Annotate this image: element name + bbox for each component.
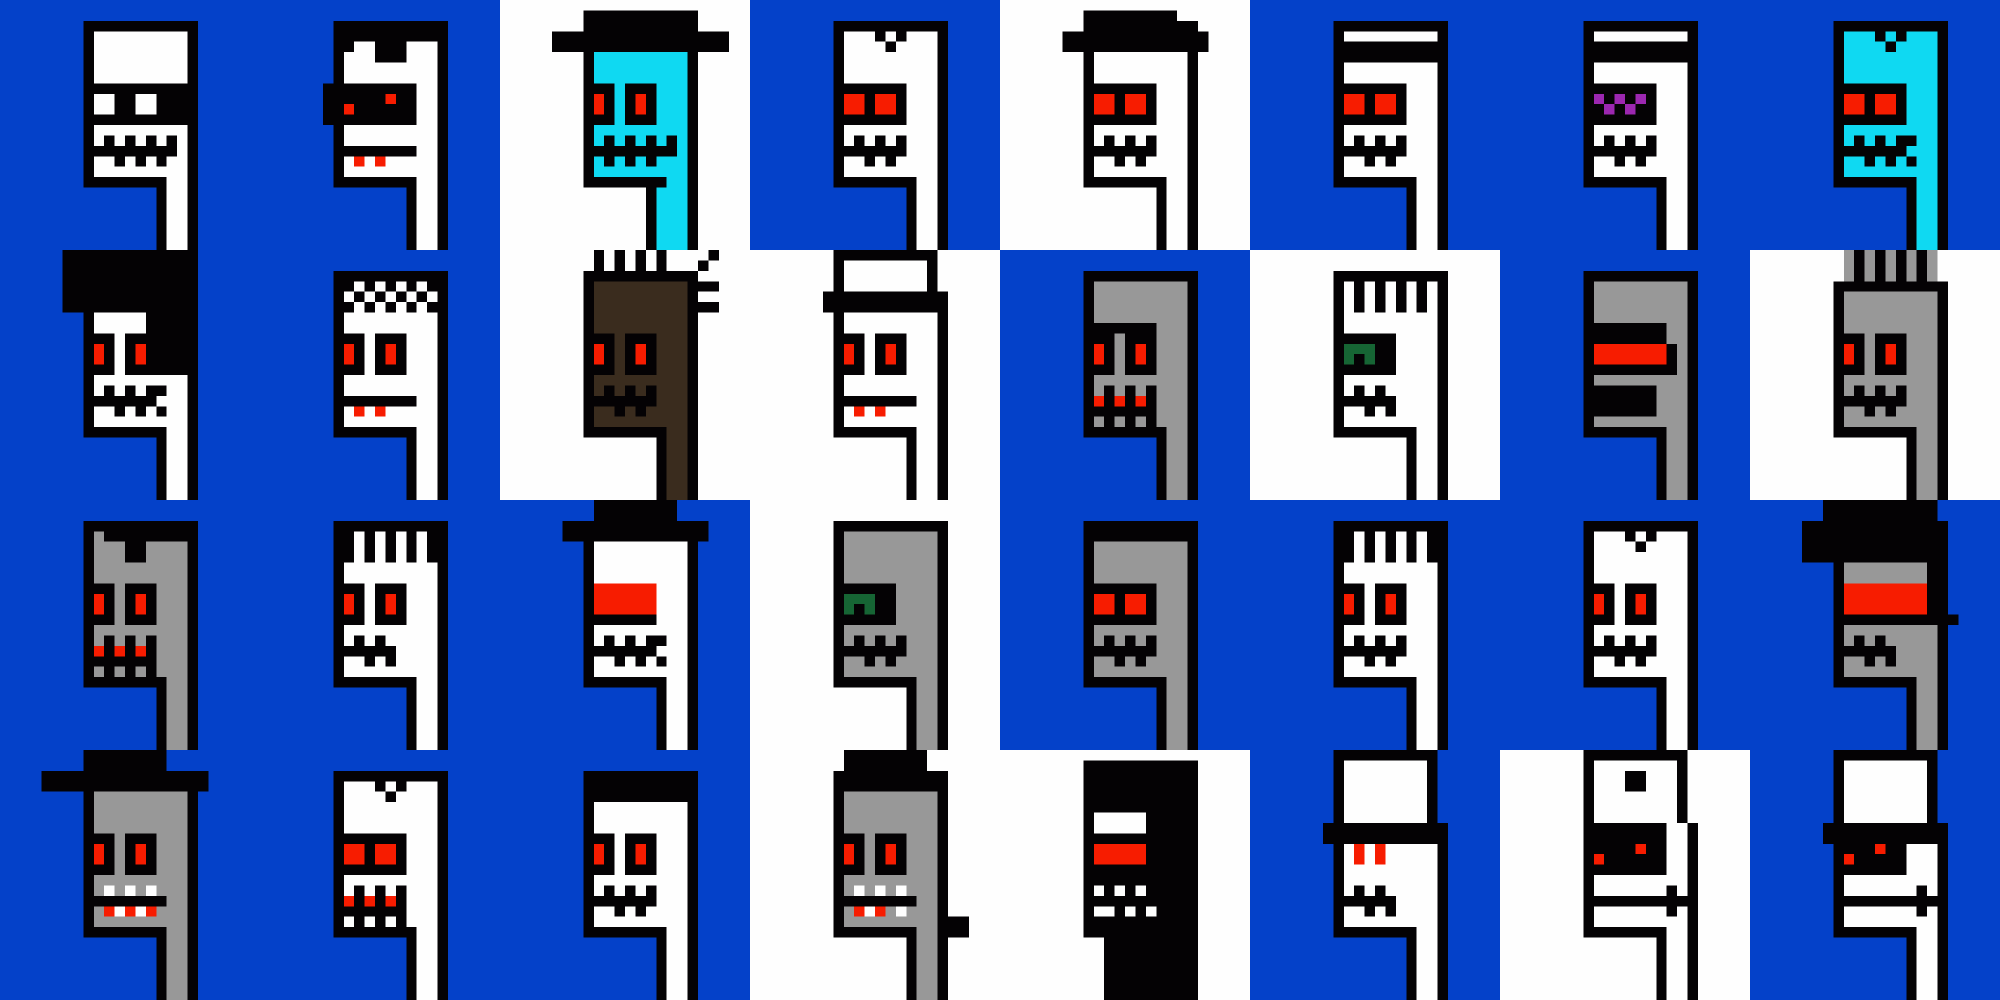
skull-pixel-canvas bbox=[750, 500, 1000, 750]
skull-avatar bbox=[0, 750, 250, 1000]
skull-pixel-canvas bbox=[750, 250, 1000, 500]
skull-pixel-canvas bbox=[500, 0, 750, 250]
skull-avatar bbox=[1250, 750, 1500, 1000]
skull-avatar bbox=[1250, 0, 1500, 250]
skull-avatar bbox=[1000, 500, 1250, 750]
skull-pixel-canvas bbox=[1000, 750, 1250, 1000]
skull-avatar bbox=[1000, 750, 1250, 1000]
skull-pixel-canvas bbox=[250, 500, 500, 750]
skull-avatar bbox=[1750, 750, 2000, 1000]
skull-art-grid bbox=[0, 0, 2000, 1000]
skull-pixel-canvas bbox=[1750, 250, 2000, 500]
skull-avatar bbox=[500, 500, 750, 750]
skull-pixel-canvas bbox=[500, 500, 750, 750]
skull-pixel-canvas bbox=[250, 250, 500, 500]
skull-avatar bbox=[0, 0, 250, 250]
skull-avatar bbox=[250, 500, 500, 750]
skull-avatar bbox=[1000, 250, 1250, 500]
skull-pixel-canvas bbox=[1500, 500, 1750, 750]
skull-pixel-canvas bbox=[0, 750, 250, 1000]
skull-pixel-canvas bbox=[1250, 500, 1500, 750]
skull-avatar bbox=[1000, 0, 1250, 250]
skull-avatar bbox=[1750, 500, 2000, 750]
skull-pixel-canvas bbox=[0, 250, 250, 500]
skull-pixel-canvas bbox=[1000, 0, 1250, 250]
skull-avatar bbox=[1500, 250, 1750, 500]
skull-avatar bbox=[250, 750, 500, 1000]
skull-avatar bbox=[750, 250, 1000, 500]
skull-avatar bbox=[1500, 0, 1750, 250]
skull-pixel-canvas bbox=[0, 0, 250, 250]
skull-avatar bbox=[250, 250, 500, 500]
skull-avatar bbox=[1750, 0, 2000, 250]
skull-avatar bbox=[0, 500, 250, 750]
skull-pixel-canvas bbox=[1500, 0, 1750, 250]
skull-pixel-canvas bbox=[250, 750, 500, 1000]
skull-pixel-canvas bbox=[1000, 500, 1250, 750]
skull-pixel-canvas bbox=[250, 0, 500, 250]
skull-pixel-canvas bbox=[1250, 750, 1500, 1000]
skull-avatar bbox=[250, 0, 500, 250]
skull-pixel-canvas bbox=[1750, 0, 2000, 250]
skull-pixel-canvas bbox=[1750, 750, 2000, 1000]
skull-pixel-canvas bbox=[1250, 250, 1500, 500]
skull-avatar bbox=[500, 250, 750, 500]
skull-pixel-canvas bbox=[1750, 500, 2000, 750]
skull-avatar bbox=[750, 750, 1000, 1000]
skull-pixel-canvas bbox=[750, 750, 1000, 1000]
skull-avatar bbox=[500, 0, 750, 250]
skull-avatar bbox=[750, 0, 1000, 250]
skull-avatar bbox=[1250, 500, 1500, 750]
skull-pixel-canvas bbox=[750, 0, 1000, 250]
skull-avatar bbox=[1500, 750, 1750, 1000]
skull-pixel-canvas bbox=[1500, 250, 1750, 500]
skull-avatar bbox=[1750, 250, 2000, 500]
skull-pixel-canvas bbox=[1000, 250, 1250, 500]
skull-avatar bbox=[500, 750, 750, 1000]
skull-avatar bbox=[0, 250, 250, 500]
skull-avatar bbox=[750, 500, 1000, 750]
skull-pixel-canvas bbox=[500, 250, 750, 500]
skull-pixel-canvas bbox=[1500, 750, 1750, 1000]
skull-pixel-canvas bbox=[1250, 0, 1500, 250]
skull-pixel-canvas bbox=[0, 500, 250, 750]
skull-avatar bbox=[1250, 250, 1500, 500]
skull-avatar bbox=[1500, 500, 1750, 750]
skull-pixel-canvas bbox=[500, 750, 750, 1000]
